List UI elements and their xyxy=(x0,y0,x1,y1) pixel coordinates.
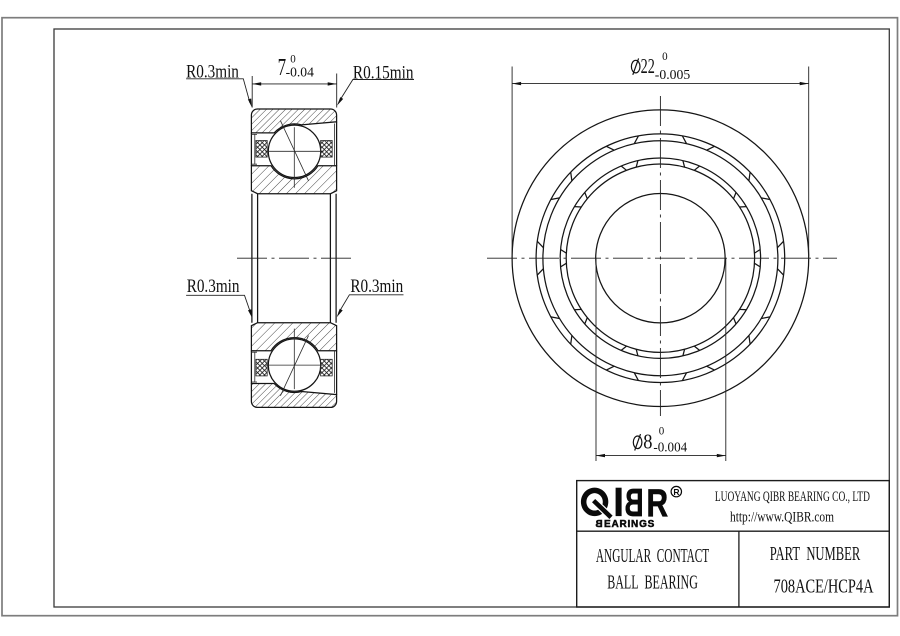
svg-text:0: 0 xyxy=(290,52,296,66)
svg-text:PART NUMBER: PART NUMBER xyxy=(770,543,861,565)
svg-text:8: 8 xyxy=(643,430,652,454)
svg-text:0: 0 xyxy=(662,49,668,63)
svg-text:708ACE/HCP4A: 708ACE/HCP4A xyxy=(774,576,874,598)
svg-text:-0.005: -0.005 xyxy=(655,68,690,83)
svg-text:0: 0 xyxy=(659,423,665,437)
svg-text:ANGULAR CONTACT: ANGULAR CONTACT xyxy=(596,545,709,567)
svg-text:BALL BEARING: BALL BEARING xyxy=(607,572,698,594)
svg-text:R: R xyxy=(673,487,679,497)
svg-text:R0.3min: R0.3min xyxy=(187,276,240,297)
svg-text:-0.004: -0.004 xyxy=(653,441,687,456)
svg-text:-0.04: -0.04 xyxy=(286,65,314,80)
svg-text:R0.3min: R0.3min xyxy=(350,276,403,297)
svg-text:EARINGS: EARINGS xyxy=(604,519,655,530)
svg-text:LUOYANG QIBR BEARING CO., LTD: LUOYANG QIBR BEARING CO., LTD xyxy=(715,489,870,505)
svg-text:R0.3min: R0.3min xyxy=(186,62,239,83)
svg-text:http://www.QIBR.com: http://www.QIBR.com xyxy=(730,509,834,525)
svg-text:B: B xyxy=(595,519,602,530)
svg-text:R0.15min: R0.15min xyxy=(353,62,414,83)
svg-text:22: 22 xyxy=(641,54,655,78)
